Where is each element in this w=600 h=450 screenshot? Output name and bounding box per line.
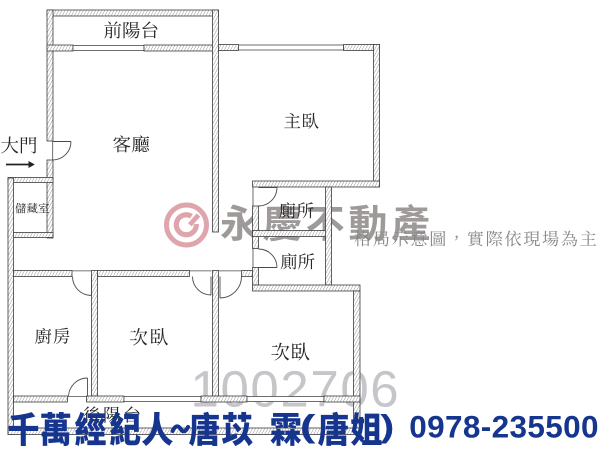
svg-text:): ) [380, 408, 394, 443]
svg-text:0978-235500: 0978-235500 [409, 409, 599, 445]
svg-text:(: ( [300, 409, 316, 444]
svg-text:1002706: 1002706 [191, 361, 401, 418]
